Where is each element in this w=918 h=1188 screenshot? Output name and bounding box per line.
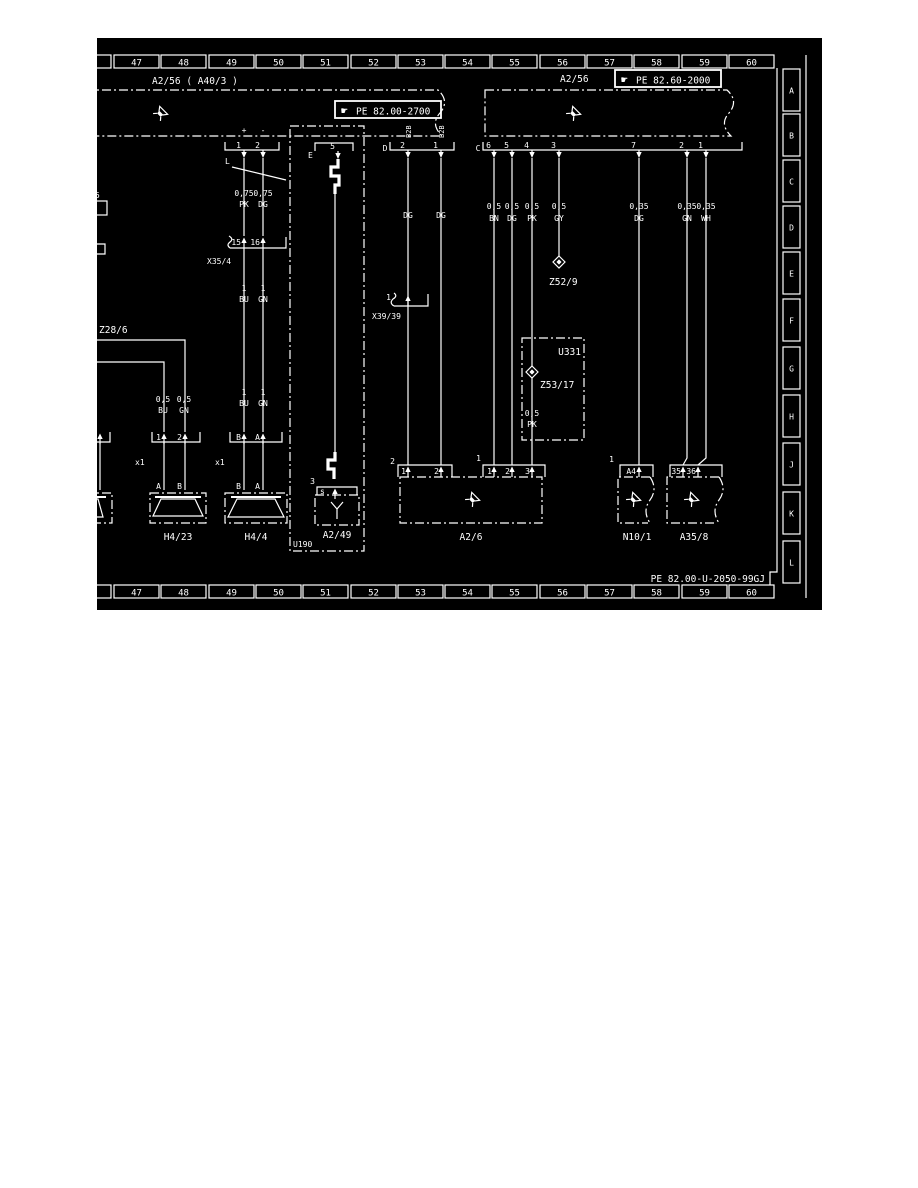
wire-color: DG (634, 214, 644, 223)
pin-letter: A (255, 482, 260, 491)
box-a2-6: 2 1 2 1 1 2 3 A2/6 (390, 454, 545, 543)
wire-color: BU (239, 295, 249, 304)
ruler-label: 47 (131, 59, 142, 69)
speaker-h4-4: H4/4 (225, 493, 287, 543)
ruler-label: 59 (699, 589, 710, 599)
ruler-cell: 59 (682, 585, 727, 599)
solder-point-z52-9: Z52/9 (549, 256, 578, 288)
ruler-cell: 51 (303, 585, 348, 599)
ruler-label: 47 (131, 589, 142, 599)
ruler-cell: 52 (351, 55, 396, 69)
pin-arrow-icon (405, 296, 410, 307)
row-letter: L (789, 559, 794, 568)
wire-labels-c: 0,5 BN 0,5 DG 0,5 PK 0,5 GY 0,35 DG 0,35… (487, 202, 716, 223)
ruler-label: 54 (462, 589, 473, 599)
ref-label: PE 82.00-2700 (356, 107, 431, 118)
ref-label: PE 82.60-2000 (636, 76, 711, 87)
ruler-label: 56 (557, 589, 568, 599)
ruler-cell: 60 (729, 585, 774, 599)
pin-number: 1 (698, 141, 703, 150)
ruler-label: 53 (415, 59, 426, 69)
ruler-label: 54 (462, 59, 473, 69)
row-letter-cell: J (783, 443, 800, 485)
ruler-cell: 55 (492, 55, 537, 69)
pin-number: 1 (487, 467, 492, 476)
wire-size: 0,5 (552, 202, 567, 211)
pin-arrow-icon (491, 467, 496, 478)
speaker-icon (153, 106, 168, 121)
wire-color: GN (179, 406, 189, 415)
pin-letter: B (236, 433, 241, 442)
ruler-cell: 51 (303, 55, 348, 69)
ruler-cell: 53 (398, 55, 443, 69)
row-letter-cell: F (783, 299, 800, 341)
speaker-icon (566, 106, 581, 121)
ruler-label: 55 (509, 59, 520, 69)
pin-number: 2 (679, 141, 684, 150)
device-label: U190 (293, 540, 312, 549)
unit-right-label: A2/56 (560, 74, 589, 85)
box-u190: U190 E 5 3 s A2/49 (290, 126, 364, 551)
pin-letter: B (236, 482, 241, 491)
ruler-label: 60 (746, 59, 757, 69)
pin-arrow-icon (260, 238, 265, 249)
wire-size: 0,35 (696, 202, 715, 211)
row-letter-cell: G (783, 347, 800, 389)
row-letter-cell: D (783, 206, 800, 248)
pin-arrow-icon (636, 150, 641, 158)
ruler-label: 56 (557, 59, 568, 69)
ruler-cell: 54 (445, 585, 490, 599)
row-letter: G (789, 365, 794, 374)
device-label: N10/1 (623, 532, 652, 543)
pointing-hand-icon: ☛ (621, 74, 628, 87)
pin-arrow-icon (529, 150, 534, 158)
pin-letter: B (177, 482, 182, 491)
pin-number: 5 (330, 142, 335, 151)
ruler-label: 48 (178, 59, 189, 69)
cutoff-fragments: 5 (97, 166, 112, 523)
connector-coax: 3 s (310, 477, 357, 499)
wire-color: DG (436, 211, 446, 220)
unit-left-a2-56: A2/56 ( A40/3 ) ☛ PE 82.00-2700 + - 1 2 … (97, 76, 445, 180)
ruler-cell: 47 (114, 585, 159, 599)
ruler-label: 57 (604, 589, 615, 599)
pin-number: 1 (386, 293, 391, 302)
ruler-cell: 57 (587, 55, 632, 69)
connector-x35-4: 15 16 X35/4 (207, 236, 286, 266)
wire-color: DG (507, 214, 517, 223)
wire-size: 1 (242, 388, 247, 397)
device-label: H4/23 (164, 532, 193, 543)
ref-box-pe-8200-2700: ☛ PE 82.00-2700 (335, 101, 441, 118)
ruler-cell: 50 (256, 585, 301, 599)
wire-color: PK (527, 214, 537, 223)
wire-size: 1 (261, 284, 266, 293)
wire-size: 0,5 (525, 202, 540, 211)
connector-label: D (383, 144, 388, 153)
row-letter: K (789, 510, 794, 519)
pin-arrow-icon (405, 467, 410, 478)
pin-number: 5 (504, 141, 509, 150)
wire-size: 0,35 (629, 202, 648, 211)
ruler-cell: 48 (161, 55, 206, 69)
ruler-label: 49 (226, 59, 237, 69)
ruler-cell: 53 (398, 585, 443, 599)
pin-number: 2 (505, 467, 510, 476)
pin-number: 3 (310, 477, 315, 486)
row-letter: H (789, 413, 794, 422)
row-letter-cell: B (783, 114, 800, 156)
solder-point-icon (553, 256, 565, 268)
device-label: A2/49 (323, 530, 352, 541)
ruler-cell: 47 (114, 55, 159, 69)
wire-color: BU (239, 399, 249, 408)
connector-e: E 5 (308, 142, 353, 160)
solder-point-icon (526, 366, 538, 378)
ruler-label: 60 (746, 589, 757, 599)
pin-number: 6 (486, 141, 491, 150)
ruler-label: 48 (178, 589, 189, 599)
connector-label: 1 (609, 455, 614, 464)
ruler-cell: 54 (445, 55, 490, 69)
ruler-label: 58 (651, 589, 662, 599)
connector-label: x1 (215, 458, 225, 467)
row-letter: F (789, 317, 794, 326)
wire-size: 1 (261, 388, 266, 397)
chain-h4-4: 0,75 PK 0,75 DG 15 16 X35/4 1 BU 1 GN 1 … (207, 158, 287, 543)
ruler-cell: 59 (682, 55, 727, 69)
twist-line (232, 167, 286, 180)
ruler-cell-partial (97, 55, 111, 68)
wire-size: 0,75 (253, 189, 272, 198)
speaker-icon (684, 492, 699, 507)
ruler-cell: 57 (587, 585, 632, 599)
box-n10-1: 1 A4 N10/1 (609, 455, 654, 543)
ruler-label: 53 (415, 589, 426, 599)
unit-right-a2-56: A2/56 ☛ PE 82.60-2000 (485, 70, 734, 136)
pin-number: A4 (626, 467, 636, 476)
pin-number: 16 (250, 238, 260, 247)
ruler-cell: 48 (161, 585, 206, 599)
wire (97, 340, 185, 432)
pin-number: 7 (631, 141, 636, 150)
box-u331: U331 Z53/17 0,5 PK (522, 338, 584, 440)
wire-color: DG (258, 200, 268, 209)
ruler-label: 58 (651, 59, 662, 69)
pin-arrow-icon (335, 151, 340, 159)
pin-number: 1 (236, 141, 241, 150)
wire-color: DG (403, 211, 413, 220)
pin-number: 3 (551, 141, 556, 150)
wire-size: 0,5 (525, 409, 540, 418)
box-a2-49: A2/49 (315, 495, 359, 541)
pin-number: 2 (177, 433, 182, 442)
pin-arrow-icon (529, 467, 534, 478)
row-letter-cell: A (783, 69, 800, 111)
wire-color: BN (489, 214, 499, 223)
connector-label: 1 (476, 454, 481, 463)
speaker-icon (465, 492, 480, 507)
ruler-label: 55 (509, 589, 520, 599)
coax-cable (328, 452, 335, 479)
wire-size: 1 (242, 284, 247, 293)
row-letter-cell: C (783, 160, 800, 202)
device-label: Z53/17 (540, 380, 574, 391)
ruler-cell: 49 (209, 55, 254, 69)
bottom-ruler: 47 48 49 50 51 52 53 54 55 56 57 58 59 6… (97, 585, 774, 599)
unit-left-label: A2/56 ( A40/3 ) (152, 76, 238, 87)
ruler-cell: 55 (492, 585, 537, 599)
pin-arrow-icon (241, 150, 246, 158)
connector-d: D 2 1 B2B B2B (383, 125, 454, 158)
ruler-cell: 58 (634, 55, 679, 69)
device-label: H4/4 (245, 532, 268, 543)
wire-color: PK (527, 420, 537, 429)
row-letter: D (789, 224, 794, 233)
connector-x1-right: B A x1 (215, 432, 282, 467)
wire-color: WH (701, 214, 711, 223)
pin-letter: A (156, 482, 161, 491)
speaker-icon (626, 492, 641, 507)
connector-label: E (308, 151, 313, 160)
pin-number: 36 (686, 467, 696, 476)
pin-arrow-icon (684, 150, 689, 158)
wire-color: GN (682, 214, 692, 223)
row-letter: E (789, 270, 794, 279)
row-letter: C (789, 178, 794, 187)
device-label: U331 (558, 347, 581, 358)
ruler-label: 57 (604, 59, 615, 69)
pin-arrow-icon (509, 467, 514, 478)
antenna-icon (331, 502, 343, 519)
ruler-cell: 50 (256, 55, 301, 69)
device-label: A2/6 (460, 532, 483, 543)
wire-size: 0,75 (234, 189, 253, 198)
chain-h4-23: Z28/6 0,5 BU 0,5 GN 1 2 x1 A B H4/23 (97, 325, 206, 543)
connector-label: x1 (135, 458, 145, 467)
row-letter: J (789, 461, 794, 470)
row-letter: A (789, 87, 794, 96)
ruler-label: 52 (368, 589, 379, 599)
wire-color: PK (239, 200, 249, 209)
wiring-diagram-canvas: 47 48 49 50 51 52 53 54 55 56 57 58 59 6… (97, 38, 822, 610)
wire-size: 0,5 (177, 395, 192, 404)
ruler-cell-partial (97, 585, 111, 598)
fragment-label: 5 (97, 191, 100, 200)
ruler-label: 51 (320, 589, 331, 599)
pin-letter: A (255, 433, 260, 442)
doc-number: PE 82.00-U-2050-99GJ (651, 574, 765, 585)
wire-code: B2B (438, 125, 446, 138)
connector-x39-39: 1 X39/39 (372, 293, 428, 321)
ref-box-pe-8260-2000: ☛ PE 82.60-2000 (615, 70, 721, 87)
connector-label: X35/4 (207, 257, 231, 266)
row-letter-cell: L (783, 541, 800, 583)
device-label: A35/8 (680, 532, 709, 543)
speaker-h4-23: H4/23 (150, 493, 206, 543)
pin-arrow-icon (695, 467, 700, 478)
connector-label: 2 (390, 457, 395, 466)
pin-arrow-icon (491, 150, 496, 158)
connector-radio-out: + - 1 2 L (225, 126, 286, 180)
pin-arrow-icon (636, 467, 641, 478)
pin-arrow-icon (556, 150, 561, 158)
ruler-cell: 56 (540, 585, 585, 599)
box-a35-8: 35 36 A35/8 (667, 465, 723, 543)
ruler-cell: 56 (540, 55, 585, 69)
plus-sign: + (242, 126, 247, 135)
wire-color: GY (554, 214, 564, 223)
coax-cable (331, 159, 339, 194)
pin-arrow-icon (438, 150, 443, 158)
ruler-label: 59 (699, 59, 710, 69)
pin-number: 4 (524, 141, 529, 150)
pin-arrow-icon (405, 150, 410, 158)
pointing-hand-icon: ☛ (341, 105, 348, 118)
row-letter-cell: K (783, 492, 800, 534)
connector-label: C (476, 144, 481, 153)
minus-sign: - (261, 126, 266, 135)
pin-arrow-icon (438, 467, 443, 478)
pin-number: 2 (400, 141, 405, 150)
connector-label: X39/39 (372, 312, 401, 321)
pin-arrow-icon (332, 489, 337, 500)
ruler-label: 52 (368, 59, 379, 69)
pin-arrow-icon (703, 150, 708, 158)
twist-note: L (225, 157, 230, 166)
wire-color: BU (158, 406, 168, 415)
pin-number: 15 (231, 238, 241, 247)
wire-color: GN (258, 295, 268, 304)
pin-number: 1 (401, 467, 406, 476)
ruler-label: 50 (273, 59, 284, 69)
device-label: Z52/9 (549, 277, 578, 288)
wire (97, 362, 164, 432)
connector-c: C 6 5 4 3 7 2 1 (476, 141, 742, 158)
pin-number: 1 (433, 141, 438, 150)
wire-color: GN (258, 399, 268, 408)
wire-code: B2B (405, 125, 413, 138)
ruler-cell: 58 (634, 585, 679, 599)
wiring-diagram-panel: 47 48 49 50 51 52 53 54 55 56 57 58 59 6… (97, 38, 822, 610)
device-label: Z28/6 (99, 325, 128, 336)
pin-number: 3 (525, 467, 530, 476)
pin-number: 2 (255, 141, 260, 150)
page: 47 48 49 50 51 52 53 54 55 56 57 58 59 6… (0, 0, 918, 1188)
top-ruler: 47 48 49 50 51 52 53 54 55 56 57 58 59 6… (97, 55, 774, 69)
ruler-cell: 60 (729, 55, 774, 69)
ruler-label: 49 (226, 589, 237, 599)
ruler-label: 50 (273, 589, 284, 599)
pin-arrow-icon (241, 238, 246, 249)
row-letter-cell: E (783, 252, 800, 294)
row-letter-cell: H (783, 395, 800, 437)
row-letter: B (789, 132, 794, 141)
pin-number: 35 (671, 467, 681, 476)
wire-size: 0,5 (156, 395, 171, 404)
wire-size: 0,35 (677, 202, 696, 211)
ruler-label: 51 (320, 59, 331, 69)
pin-arrow-icon (260, 150, 265, 158)
pin-number: 2 (434, 467, 439, 476)
ruler-cell: 49 (209, 585, 254, 599)
pin-arrow-icon (680, 467, 685, 478)
wire-size: 0,5 (505, 202, 520, 211)
wire-size: 0,5 (487, 202, 502, 211)
pin-number: 1 (156, 433, 161, 442)
row-letter-column: A B C D E F G H J K L (783, 69, 800, 583)
ruler-cell: 52 (351, 585, 396, 599)
pin-arrow-icon (509, 150, 514, 158)
connector-x1-left: 1 2 x1 (135, 432, 200, 467)
